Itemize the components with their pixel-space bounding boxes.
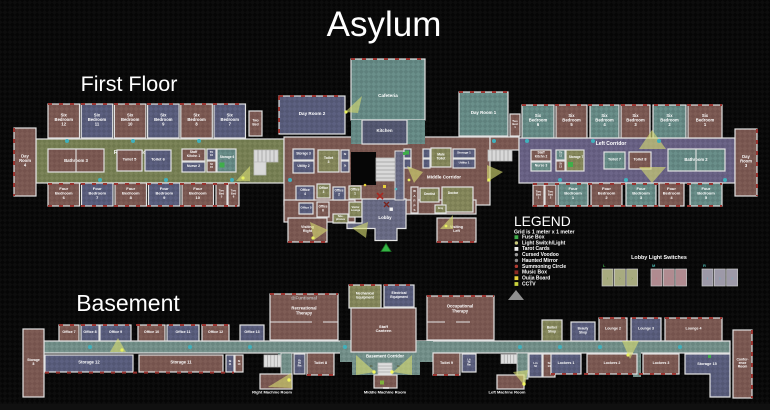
svg-text:Xray: Xray [438,207,444,210]
svg-text:Right Machine Room: Right Machine Room [252,390,292,395]
svg-text:R: R [703,263,706,268]
svg-text:Toilet 5: Toilet 5 [123,157,137,162]
svg-text:Day Room 2: Day Room 2 [299,111,326,116]
svg-text:Storage 1: Storage 1 [457,151,471,155]
svg-text:First Floor: First Floor [81,72,178,96]
svg-text:Tlt10: Tlt10 [210,150,214,157]
svg-text:@Funtismal: @Funtismal [291,296,317,301]
svg-text:Lockers 2: Lockers 2 [604,361,621,365]
svg-text:Basement: Basement [76,290,180,316]
svg-text:Dentist: Dentist [424,192,436,196]
svg-text:CCTV: CCTV [522,281,536,287]
svg-text:Nurse 2: Nurse 2 [187,164,200,168]
svg-text:Toilet 8: Toilet 8 [633,158,646,162]
svg-text:Storage 12: Storage 12 [78,360,100,365]
svg-text:St: St [344,164,347,168]
svg-text:Middle Machine Room: Middle Machine Room [364,390,407,395]
svg-text:Toilet 6: Toilet 6 [151,157,165,162]
svg-text:Office 12: Office 12 [208,330,223,334]
svg-text:Lobby: Lobby [378,215,392,220]
svg-text:Kitchen: Kitchen [376,128,392,133]
svg-text:Toilet 9: Toilet 9 [440,361,453,365]
svg-text:Storage 7: Storage 7 [569,155,584,159]
svg-text:Asylum: Asylum [327,5,442,44]
svg-text:Lounge 3: Lounge 3 [638,327,654,331]
svg-text:Storage 15: Storage 15 [697,362,716,366]
svg-text:Toilet 7: Toilet 7 [608,158,621,162]
svg-text:Office 7: Office 7 [62,330,75,334]
svg-text:Office 5: Office 5 [300,206,311,210]
svg-text:ElectricalEquipment: ElectricalEquipment [390,291,408,299]
svg-text:Storage 6: Storage 6 [220,155,235,159]
svg-text:Office 11: Office 11 [176,330,191,334]
svg-text:LftTltRm: LftTltRm [467,358,471,366]
svg-text:Lounge 2: Lounge 2 [605,327,621,331]
svg-text:Office 13: Office 13 [244,330,259,334]
svg-text:MechanicalEquipment: MechanicalEquipment [356,292,375,300]
svg-text:Toilet 8: Toilet 8 [314,361,327,365]
svg-text:Office 10: Office 10 [144,330,159,334]
svg-text:LEGEND: LEGEND [514,214,571,229]
svg-text:Day Room 1: Day Room 1 [471,110,497,115]
svg-text:Office 8: Office 8 [83,330,96,334]
svg-text:VisitorLounge: VisitorLounge [351,205,361,212]
svg-text:St: St [344,152,347,156]
svg-text:Nurse 3: Nurse 3 [535,164,548,168]
svg-text:Middle Corridor: Middle Corridor [427,175,461,180]
svg-text:Storage 3: Storage 3 [296,152,311,156]
svg-text:Lobby Light Switches: Lobby Light Switches [631,255,687,261]
svg-text:Cafeteria: Cafeteria [378,93,398,98]
svg-text:Lockers 3: Lockers 3 [653,361,670,365]
svg-text:TwoBed: TwoBed [252,119,258,127]
svg-text:Office 9: Office 9 [109,330,122,334]
svg-text:Left Machine Room: Left Machine Room [489,390,526,395]
svg-text:Lockers 1: Lockers 1 [558,361,575,365]
svg-text:Storage 11: Storage 11 [170,360,192,365]
svg-text:Lounge 4: Lounge 4 [686,327,702,331]
svg-text:Basement Corridor: Basement Corridor [366,354,404,359]
svg-text:Doctor: Doctor [448,191,459,195]
svg-text:BeautyShop: BeautyShop [578,327,589,335]
svg-text:Utility 2: Utility 2 [297,164,309,168]
svg-text:Utility 1: Utility 1 [459,161,470,165]
svg-text:Left Corridor: Left Corridor [596,141,627,147]
